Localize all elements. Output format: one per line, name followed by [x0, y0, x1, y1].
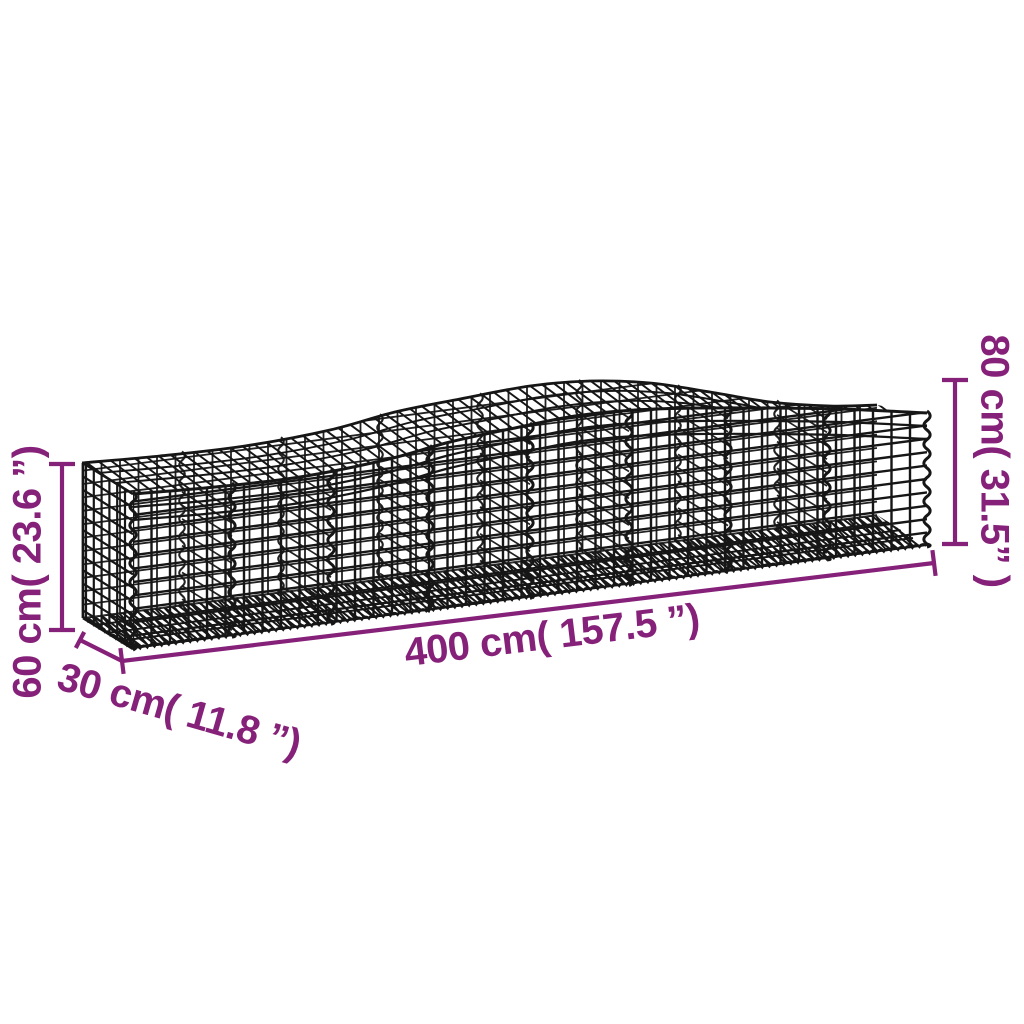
left-end-panel-mesh — [83, 455, 133, 660]
dimension-label-height-end: 60 cm( 23.6 ”) — [6, 445, 51, 698]
gabion-basket-illustration — [0, 0, 1024, 1024]
product-dimension-diagram: 60 cm( 23.6 ”) 30 cm( 11.8 ”) 400 cm( 15… — [0, 0, 1024, 1024]
dimension-label-height-peak: 80 cm( 31.5” ) — [972, 334, 1017, 587]
